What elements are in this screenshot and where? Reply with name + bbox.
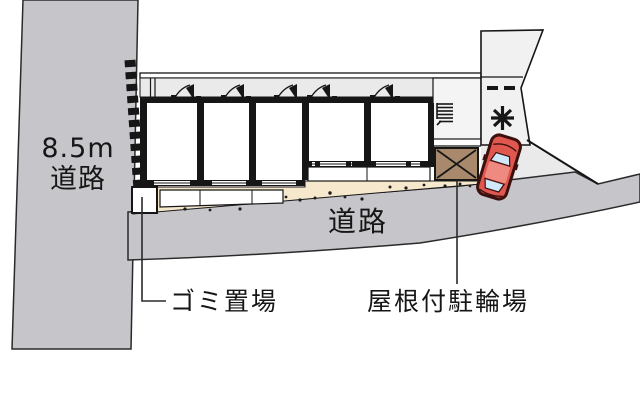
site-plan: 8.5m 道路 道路 ゴミ置場 屋根付駐輪場 [0,0,640,400]
right-outer-wall [428,103,434,167]
bicycle-shed [435,148,478,180]
site-plan-canvas: 8.5m 道路 道路 ゴミ置場 屋根付駐輪場 [0,0,640,400]
bike-shed-label: 屋根付駐輪場 [367,287,529,316]
parking-dash-mark [487,86,498,90]
parking-dash-mark [504,86,515,90]
left-road-label: 道路 [50,164,106,195]
room-block-left [147,103,302,180]
room-divider [197,103,204,180]
garbage-label: ゴミ置場 [170,287,278,316]
room-divider [364,103,371,161]
building-top-wall [140,73,481,78]
left-road-width-label: 8.5m [41,133,114,164]
parking-star-icon [491,106,514,130]
garbage-box [132,187,157,213]
bottom-road-label: 道路 [328,205,388,238]
front-wall [140,97,433,103]
veranda-right [308,167,430,181]
stair-landing [433,78,481,139]
room-divider [249,103,256,180]
